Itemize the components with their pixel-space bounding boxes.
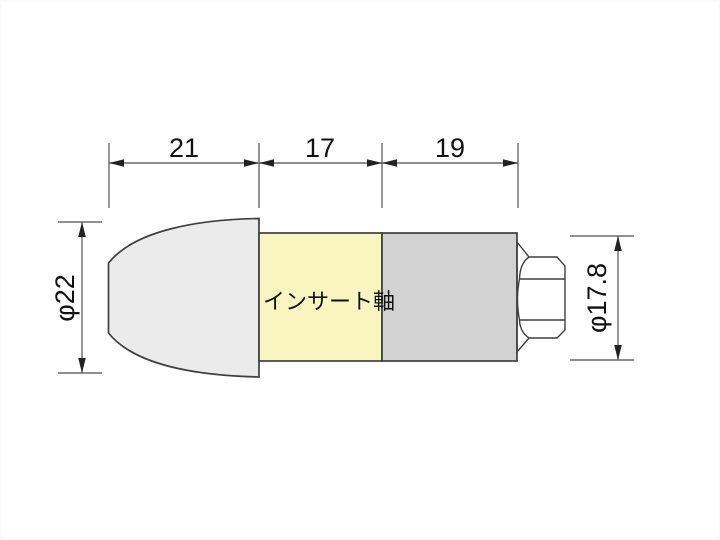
part-view: インサート軸 xyxy=(109,219,566,378)
arrowhead-right-21 xyxy=(244,159,259,167)
dimension-label-17: 17 xyxy=(305,133,335,163)
right-diameter-dimension: φ17.8 xyxy=(570,236,634,360)
diameter-label-17-8: φ17.8 xyxy=(582,263,612,333)
top-dimension-chain: 21 17 19 xyxy=(109,133,518,208)
insert-shaft-label: インサート軸 xyxy=(263,289,395,314)
hex-nut xyxy=(517,242,565,352)
arrowhead-right-19 xyxy=(503,159,518,167)
dimension-label-21: 21 xyxy=(169,133,199,163)
arrowhead-left-21 xyxy=(109,159,124,167)
dimension-label-19: 19 xyxy=(435,133,465,163)
hex-nut-silhouette xyxy=(517,242,565,352)
arrowhead-left-19 xyxy=(382,159,397,167)
drawing-page: 21 17 19 インサート軸 xyxy=(0,0,720,540)
technical-drawing: 21 17 19 インサート軸 xyxy=(0,0,720,540)
body-section xyxy=(382,233,517,361)
arrowhead-cap-top xyxy=(78,222,86,237)
cap-profile xyxy=(109,219,260,378)
arrowhead-left-17 xyxy=(259,159,274,167)
arrowhead-body-bottom xyxy=(614,345,622,360)
arrowhead-body-top xyxy=(614,236,622,251)
arrowhead-right-17 xyxy=(367,159,382,167)
diameter-label-22: φ22 xyxy=(50,274,80,322)
left-diameter-dimension: φ22 xyxy=(50,222,102,373)
hex-nut-facet-arcs xyxy=(518,257,530,338)
arrowhead-cap-bottom xyxy=(78,358,86,373)
